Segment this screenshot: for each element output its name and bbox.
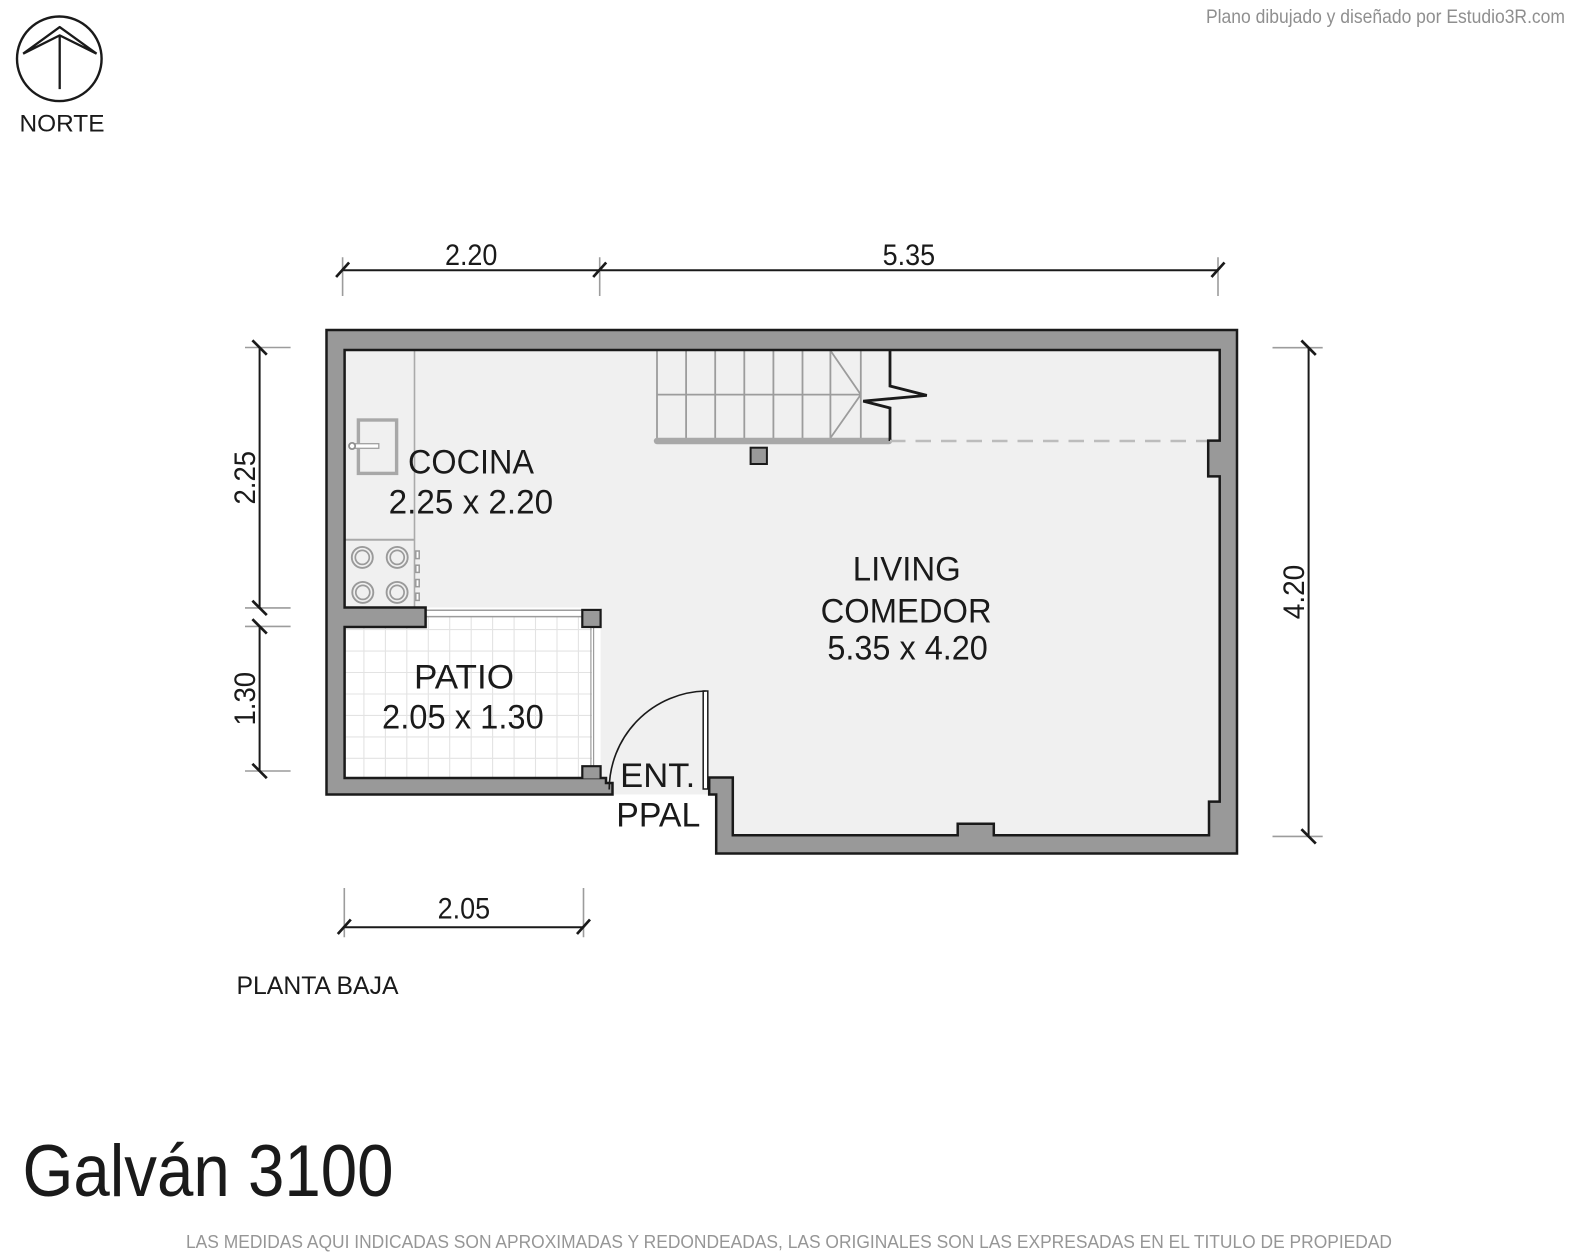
- svg-text:PLANTA BAJA: PLANTA BAJA: [237, 972, 399, 1000]
- svg-text:LAS MEDIDAS AQUI INDICADAS SON: LAS MEDIDAS AQUI INDICADAS SON APROXIMAD…: [186, 1232, 1392, 1252]
- svg-text:COMEDOR: COMEDOR: [821, 592, 992, 630]
- svg-text:2.25 x 2.20: 2.25 x 2.20: [389, 483, 554, 521]
- svg-text:2.20: 2.20: [445, 239, 498, 272]
- svg-text:2.05 x 1.30: 2.05 x 1.30: [382, 699, 544, 737]
- svg-text:PATIO: PATIO: [414, 659, 514, 697]
- svg-text:4.20: 4.20: [1278, 565, 1311, 620]
- svg-text:ENT.: ENT.: [620, 757, 695, 795]
- svg-text:1.30: 1.30: [229, 672, 262, 726]
- svg-text:Galván 3100: Galván 3100: [23, 1129, 394, 1212]
- svg-text:2.05: 2.05: [438, 892, 491, 925]
- svg-text:Plano dibujado y diseñado por: Plano dibujado y diseñado por Estudio3R.…: [1206, 6, 1565, 28]
- svg-text:LIVING: LIVING: [853, 551, 961, 589]
- svg-text:NORTE: NORTE: [20, 111, 105, 138]
- svg-text:2.25: 2.25: [229, 451, 262, 505]
- svg-text:COCINA: COCINA: [408, 443, 534, 481]
- svg-text:5.35: 5.35: [883, 239, 936, 272]
- svg-text:5.35 x 4.20: 5.35 x 4.20: [827, 630, 988, 668]
- svg-text:PPAL: PPAL: [616, 797, 700, 835]
